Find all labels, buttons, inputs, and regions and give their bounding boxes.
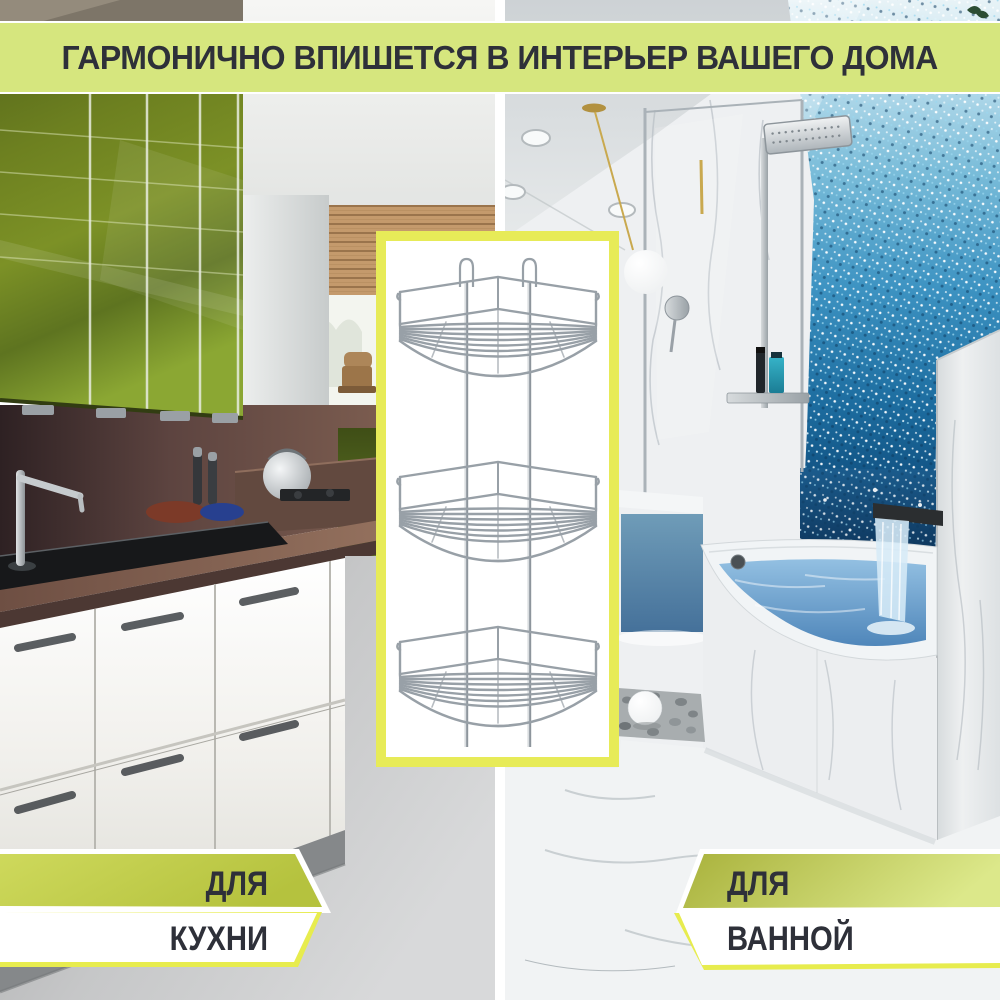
blue-bowl bbox=[200, 503, 244, 521]
product-frame bbox=[376, 231, 619, 767]
bottle-teal bbox=[769, 357, 784, 393]
bathroom-ribbon-label-bathroom: ВАННОЙ bbox=[727, 922, 854, 956]
handheld-shower bbox=[665, 296, 689, 320]
pebble-tray bbox=[615, 688, 705, 742]
red-bowl bbox=[146, 501, 206, 523]
decor-sphere bbox=[628, 691, 662, 725]
corner-shelf-product-image bbox=[386, 241, 609, 757]
bottle-dark bbox=[756, 351, 765, 393]
shower-shelf bbox=[727, 393, 809, 403]
gas-hob bbox=[280, 489, 350, 501]
bathroom-ribbon-label-for: ДЛЯ bbox=[727, 867, 789, 901]
kitchen-ribbon-label-for: ДЛЯ bbox=[38, 867, 268, 901]
ad-canvas: ГАРМОНИЧНО ВПИШЕТСЯ В ИНТЕРЬЕР ВАШЕГО ДО… bbox=[0, 0, 1000, 1000]
kitchen-ribbon-label-kitchen: КУХНИ bbox=[38, 922, 268, 956]
banner-title: ГАРМОНИЧНО ВПИШЕТСЯ В ИНТЕРЬЕР ВАШЕГО ДО… bbox=[62, 39, 938, 77]
top-banner: ГАРМОНИЧНО ВПИШЕТСЯ В ИНТЕРЬЕР ВАШЕГО ДО… bbox=[0, 21, 1000, 94]
extractor-hood bbox=[243, 195, 329, 410]
